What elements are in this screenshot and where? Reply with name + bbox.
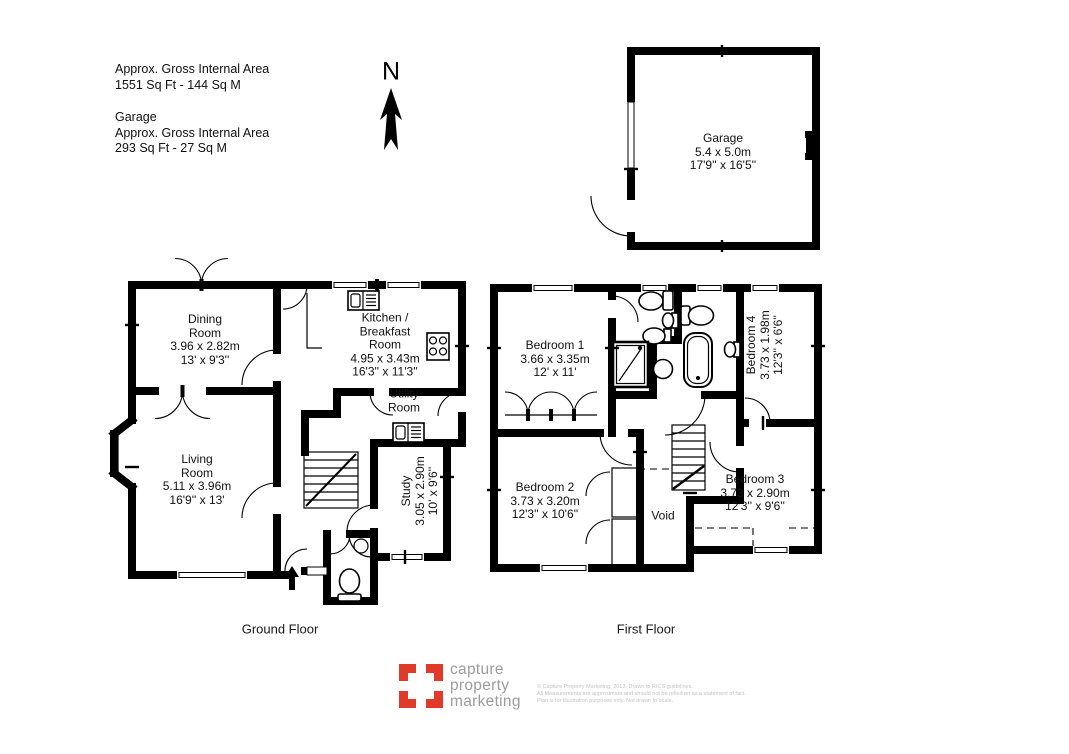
floorplan-page: Approx. Gross Internal Area 1551 Sq Ft -… bbox=[0, 0, 1069, 754]
room-label-bedroom3: Bedroom 3 3.73 x 2.90m 12'3'' x 9'6'' bbox=[720, 473, 789, 514]
room-label-living: Living Room 5.11 x 3.96m 16'9'' x 13' bbox=[163, 453, 231, 507]
room-label-garage: Garage 5.4 x 5.0m 17'9'' x 16'5'' bbox=[690, 132, 756, 173]
bath-icon bbox=[684, 333, 712, 387]
first-staircase-icon bbox=[672, 425, 705, 490]
room-label-void: Void bbox=[651, 509, 674, 523]
ensuite-toilet-icon bbox=[639, 291, 673, 310]
garage-area-note: Garage Approx. Gross Internal Area 293 S… bbox=[115, 110, 269, 157]
ensuite-basin-icon bbox=[663, 313, 679, 328]
room-label-bedroom4: Bedroom 4 3.73 x 1.98m 12'3'' x 6'6'' bbox=[745, 310, 786, 379]
garage-area-line2: 293 Sq Ft - 27 Sq M bbox=[115, 141, 269, 157]
total-area-line2: 1551 Sq Ft - 144 Sq M bbox=[115, 78, 269, 94]
bedroom2-wardrobe-doors bbox=[586, 468, 638, 567]
wc-toilet-icon bbox=[338, 569, 361, 601]
bedroom1-wardrobe-doors bbox=[505, 392, 597, 421]
kitchen-counter-line bbox=[307, 293, 322, 348]
room-label-kitchen: Kitchen / Breakfast Room 4.95 x 3.43m 16… bbox=[350, 311, 419, 379]
garage-door-swing bbox=[591, 196, 631, 236]
kitchen-sink-icon bbox=[348, 291, 379, 310]
total-area-line1: Approx. Gross Internal Area bbox=[115, 62, 269, 78]
north-label: N bbox=[382, 58, 400, 87]
garage-window bbox=[625, 102, 637, 168]
disclaimer-text: © Capture Property Marketing, 2013. Draw… bbox=[537, 684, 746, 705]
utility-sink-icon bbox=[393, 423, 424, 442]
front-door-threshold bbox=[307, 567, 327, 575]
bathroom-toilet-icon bbox=[681, 306, 714, 325]
room-label-utility: Utility Room bbox=[388, 388, 420, 415]
room-label-dining: Dining Room 3.96 x 2.82m 13' x 9'3'' bbox=[170, 313, 239, 367]
room-label-bedroom1: Bedroom 1 3.66 x 3.35m 12' x 11' bbox=[520, 339, 589, 380]
bathroom-basin-icon bbox=[725, 342, 741, 357]
north-arrow-icon bbox=[380, 88, 402, 150]
first-floor-caption: First Floor bbox=[617, 622, 676, 637]
room-label-study: Study 3.05 x 2.90m 10' x 9'6'' bbox=[400, 456, 441, 525]
brand-wordmark: capture property marketing bbox=[450, 662, 521, 710]
ground-floor-caption: Ground Floor bbox=[242, 622, 319, 637]
hob-icon bbox=[427, 333, 449, 360]
landing-basin-icon bbox=[654, 360, 673, 379]
ground-staircase-icon bbox=[304, 452, 358, 508]
garage-area-title: Garage bbox=[115, 110, 269, 126]
ground-floor-plan bbox=[114, 259, 469, 602]
brand-logo-icon bbox=[399, 664, 443, 708]
garage-area-line1: Approx. Gross Internal Area bbox=[115, 126, 269, 142]
garage-side-door bbox=[805, 131, 818, 160]
total-area-note: Approx. Gross Internal Area 1551 Sq Ft -… bbox=[115, 62, 269, 93]
room-label-bedroom2: Bedroom 2 3.73 x 3.20m 12'3'' x 10'6'' bbox=[510, 481, 579, 522]
